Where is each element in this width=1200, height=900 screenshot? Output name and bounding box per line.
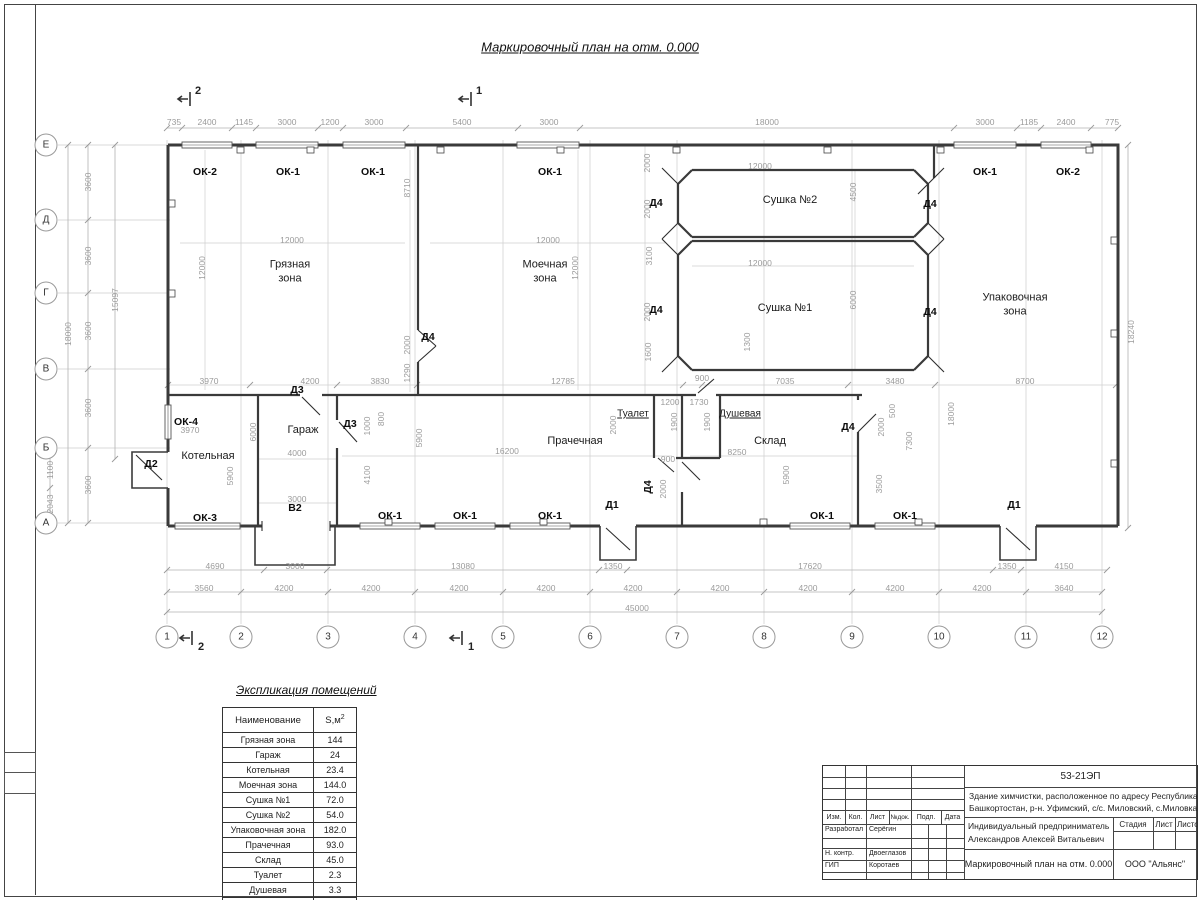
door-tag: Д2 <box>144 458 157 470</box>
vestibules <box>132 452 1036 565</box>
dimension-label: 3640 <box>1055 583 1074 593</box>
grid-axis-bubble: А <box>35 512 58 535</box>
dimension-label: 2400 <box>198 117 217 127</box>
grid-axis-bubble: 8 <box>753 626 776 649</box>
dimension-label: 5900 <box>225 467 235 486</box>
name-gip: Коротаев <box>869 862 909 872</box>
schedule-cell-name: Упаковочная зона <box>223 823 314 838</box>
dimension-label: 3600 <box>83 399 93 418</box>
section-mark-number: 1 <box>476 85 482 97</box>
grid-axis-bubble: 3 <box>317 626 340 649</box>
interior-walls <box>168 145 934 526</box>
stage-label: Стадия <box>1113 817 1153 831</box>
door-tag: Д4 <box>923 198 936 210</box>
dimension-label: 5900 <box>781 466 791 485</box>
hdr-ndok: №док. <box>889 810 911 824</box>
schedule-row: Прачечная93.0 <box>223 838 357 853</box>
dimension-label: 735 <box>167 117 181 127</box>
schedule-cell-area: 144 <box>314 733 357 748</box>
dimension-label: 3830 <box>371 376 390 386</box>
schedule-row: Туалет2.3 <box>223 868 357 883</box>
dimension-label: 3500 <box>874 475 884 494</box>
company-name: ООО "Альянс" <box>1113 849 1197 879</box>
schedule-row: Упаковочная зона182.0 <box>223 823 357 838</box>
dimension-label: 7035 <box>776 376 795 386</box>
schedule-cell-name: Склад <box>223 853 314 868</box>
grid-axis-bubble: Д <box>35 209 58 232</box>
door-tag: Д4 <box>421 331 434 343</box>
dimension-label: 2000 <box>876 418 886 437</box>
schedule-row: Сушка №254.0 <box>223 808 357 823</box>
dimension-label: 2000 <box>642 303 652 322</box>
dimension-label: 3000 <box>278 117 297 127</box>
door-leaves <box>136 168 1030 550</box>
schedule-cell-name: Сушка №2 <box>223 808 314 823</box>
schedule-cell-area: 3.3 <box>314 883 357 898</box>
dimension-label: 12785 <box>551 376 575 386</box>
grid-axis-bubble: 4 <box>404 626 427 649</box>
schedule-row: Котельная23.4 <box>223 763 357 778</box>
role-gip: ГИП <box>825 862 866 872</box>
window-tag: ОК-2 <box>193 166 217 178</box>
schedule-cell-area: 2.3 <box>314 868 357 883</box>
window-tag: ОК-1 <box>973 166 997 178</box>
dimension-label: 16200 <box>495 446 519 456</box>
dimension-label: 900 <box>661 454 675 464</box>
grid-axis-bubble: 9 <box>841 626 864 649</box>
dimension-label: 1730 <box>690 397 709 407</box>
grid-axis-bubble: 12 <box>1091 626 1114 649</box>
dimension-label: 1600 <box>643 343 653 362</box>
window-tag: ОК-2 <box>1056 166 1080 178</box>
schedule-cell-name: Сушка №1 <box>223 793 314 808</box>
door-tag: Д4 <box>923 306 936 318</box>
grid-axis-bubble: 6 <box>579 626 602 649</box>
grid-axis-bubble: 7 <box>666 626 689 649</box>
room-label: Склад <box>754 434 786 448</box>
hdr-podp: Подп. <box>911 810 941 824</box>
schedule-title: Экспликация помещений <box>236 683 377 697</box>
dimension-label: 4200 <box>301 376 320 386</box>
dimension-label: 12000 <box>536 235 560 245</box>
schedule-cell-area: 182.0 <box>314 823 357 838</box>
window-tag: ОК-1 <box>361 166 385 178</box>
dimension-label: 2400 <box>1057 117 1076 127</box>
door-tag: Д4 <box>642 480 654 493</box>
dimension-label: 18000 <box>755 117 779 127</box>
grid-axis-bubble: 2 <box>230 626 253 649</box>
name-developed: Серёгин <box>869 826 909 837</box>
dimension-label: 4200 <box>362 583 381 593</box>
schedule-cell-area: 144.0 <box>314 778 357 793</box>
dimension-label: 7300 <box>904 432 914 451</box>
dimension-label: 4200 <box>537 583 556 593</box>
schedule-row: Моечная зона144.0 <box>223 778 357 793</box>
schedule-cell-name: Прачечная <box>223 838 314 853</box>
dimension-label: 17620 <box>798 561 822 571</box>
schedule-cell-area: 54.0 <box>314 808 357 823</box>
dimension-label: 1000 <box>362 417 372 436</box>
dimension-label: 12000 <box>748 161 772 171</box>
dimension-label: 3000 <box>286 561 305 571</box>
door-tag: Д1 <box>1007 499 1020 511</box>
window-tag: ОК-1 <box>453 510 477 522</box>
dimension-label: 3600 <box>83 476 93 495</box>
client-line2: Александров Алексей Витальевич <box>968 834 1104 844</box>
dimension-label: 2000 <box>642 154 652 173</box>
dimension-label: 1100 <box>45 461 55 479</box>
window-tag: ОК-1 <box>538 510 562 522</box>
dimension-label: 800 <box>376 412 386 426</box>
dimension-label: 8250 <box>728 447 747 457</box>
dimension-label: 13080 <box>451 561 475 571</box>
dimension-label: 2000 <box>608 416 618 435</box>
schedule-cell-name: Гараж <box>223 748 314 763</box>
windows <box>165 142 1091 529</box>
door-tag: Д3 <box>343 418 356 430</box>
dimension-lines <box>50 128 1128 612</box>
window-tag: ОК-1 <box>276 166 300 178</box>
dimension-label: 4200 <box>799 583 818 593</box>
dimension-label: 1900 <box>669 413 679 432</box>
dimension-label: 18000 <box>946 402 956 426</box>
grid-axis-bubble: 5 <box>492 626 515 649</box>
schedule-row: Склад45.0 <box>223 853 357 868</box>
dimension-label: 2000 <box>642 200 652 219</box>
name-ncontrol: Двоеглазов <box>869 850 909 860</box>
grid-axis-bubble: 11 <box>1015 626 1038 649</box>
room-label: Моечная зона <box>522 258 567 287</box>
hdr-izm: Изм. <box>823 810 845 824</box>
room-label: Душевая <box>719 409 761 420</box>
dimension-label: 1290 <box>402 364 412 383</box>
dimension-label: 775 <box>1105 117 1119 127</box>
dimension-label: 45000 <box>625 603 649 613</box>
hdr-data: Дата <box>941 810 964 824</box>
dimension-label: 18240 <box>1126 320 1136 344</box>
schedule-cell-name: Котельная <box>223 763 314 778</box>
schedule-cell-area: 24 <box>314 748 357 763</box>
room-label: Гараж <box>287 423 318 437</box>
room-label: Сушка №1 <box>758 301 812 315</box>
dimension-label: 900 <box>695 373 709 383</box>
room-label: Прачечная <box>547 434 602 448</box>
schedule-row: Гараж24 <box>223 748 357 763</box>
grid-axis-bubble: Е <box>35 134 58 157</box>
dimension-label: 4100 <box>362 466 372 485</box>
room-label: Туалет <box>617 409 649 420</box>
hdr-list: Лист <box>866 810 889 824</box>
door-tag: Д1 <box>605 499 618 511</box>
dimension-label: 4690 <box>206 561 225 571</box>
schedule-cell-area: 93.0 <box>314 838 357 853</box>
dimension-label: 1300 <box>742 333 752 352</box>
section-mark-number: 2 <box>198 641 204 653</box>
client-name: Индивидуальный предприниматель Александр… <box>968 820 1118 848</box>
grid-axis-bubble: Б <box>35 437 58 460</box>
section-mark-number: 2 <box>195 85 201 97</box>
door-tag: Д4 <box>841 421 854 433</box>
dimension-label: 5400 <box>453 117 472 127</box>
window-tag: ОК-1 <box>810 510 834 522</box>
dimension-label: 1900 <box>702 413 712 432</box>
schedule-cell-name: Грязная зона <box>223 733 314 748</box>
dimension-label: 12000 <box>197 256 207 280</box>
dimension-label: 15097 <box>110 288 120 312</box>
grid-axis-bubble: 1 <box>156 626 179 649</box>
schedule-cell-name: Туалет <box>223 868 314 883</box>
dimension-label: 8700 <box>1016 376 1035 386</box>
dimension-label: 2000 <box>658 480 668 499</box>
dimension-label: 8710 <box>402 179 412 198</box>
dimension-label: 4200 <box>973 583 992 593</box>
dimension-label: 1185 <box>1020 117 1038 127</box>
schedule-table-body: Наименование S,м2 Грязная зона144Гараж24… <box>223 708 357 900</box>
section-mark-number: 1 <box>468 641 474 653</box>
dimension-label: 1200 <box>661 397 680 407</box>
sheet-label: Лист <box>1153 817 1175 831</box>
dimension-label: 3100 <box>644 247 654 266</box>
dimension-label: 1200 <box>321 117 340 127</box>
room-label: Котельная <box>181 449 234 463</box>
dimension-label: 12000 <box>748 258 772 268</box>
dimension-label: 3600 <box>83 247 93 266</box>
dimension-label: 4150 <box>1055 561 1074 571</box>
schedule-cell-area: 23.4 <box>314 763 357 778</box>
dimension-label: 3000 <box>288 494 307 504</box>
window-tag: ОК-3 <box>193 512 217 524</box>
dimension-label: 18000 <box>63 322 73 346</box>
schedule-cell-name: Душевая <box>223 883 314 898</box>
dimension-label: 3000 <box>365 117 384 127</box>
dimension-label: 3970 <box>181 425 200 435</box>
dimension-label: 12000 <box>570 256 580 280</box>
schedule-header-area: S,м2 <box>314 708 357 733</box>
hdr-kol: Кол. <box>845 810 866 824</box>
schedule-row: Грязная зона144 <box>223 733 357 748</box>
schedule-cell-area: 45.0 <box>314 853 357 868</box>
dimension-label: 12000 <box>280 235 304 245</box>
dimension-label: 2000 <box>402 336 412 355</box>
dimension-label: 3600 <box>83 322 93 341</box>
dimension-label: 4200 <box>450 583 469 593</box>
client-line1: Индивидуальный предприниматель <box>968 821 1109 831</box>
drawing-sheet: Маркировочный план на отм. 0.000 <box>0 0 1200 900</box>
window-tag: ОК-1 <box>893 510 917 522</box>
dimension-label: 3970 <box>200 376 219 386</box>
object-description: Здание химчистки, расположенное по адрес… <box>969 790 1198 816</box>
room-label: Упаковочная зона <box>982 291 1047 320</box>
dimension-label: 4200 <box>711 583 730 593</box>
grid-axis-bubble: В <box>35 358 58 381</box>
grid-axis-bubble: 10 <box>928 626 951 649</box>
grid-axis-bubble: Г <box>35 282 58 305</box>
dimension-label: 3000 <box>540 117 559 127</box>
room-schedule: Экспликация помещений Наименование S,м2 … <box>222 683 377 900</box>
dimension-label: 4200 <box>275 583 294 593</box>
schedule-row: Душевая3.3 <box>223 883 357 898</box>
window-tag: ОК-1 <box>538 166 562 178</box>
role-ncontrol: Н. контр. <box>825 850 866 860</box>
dimension-label: 4000 <box>288 448 307 458</box>
dimension-label: 4500 <box>848 183 858 202</box>
dimension-label: 3600 <box>83 173 93 192</box>
dimension-label: 4200 <box>886 583 905 593</box>
room-label: Сушка №2 <box>763 193 817 207</box>
title-block: 53-21ЭП Здание химчистки, расположенное … <box>822 765 1198 880</box>
dimension-label: 3000 <box>976 117 995 127</box>
dimension-label: 3560 <box>195 583 214 593</box>
schedule-cell-name: Моечная зона <box>223 778 314 793</box>
doc-number: 53-21ЭП <box>964 766 1197 787</box>
dimension-label: 3480 <box>886 376 905 386</box>
role-developed: Разработал <box>825 826 866 837</box>
dimension-label: 4200 <box>624 583 643 593</box>
schedule-header-name: Наименование <box>223 708 314 733</box>
dimension-label: 6000 <box>848 291 858 310</box>
window-tag: ОК-1 <box>378 510 402 522</box>
sheets-label: Листов <box>1175 817 1198 831</box>
dimension-label: 1145 <box>235 117 253 127</box>
dimension-label: 6000 <box>248 423 258 442</box>
dimension-label: 1350 <box>998 561 1017 571</box>
dimension-label: 500 <box>887 404 897 418</box>
schedule-cell-area: 72.0 <box>314 793 357 808</box>
drawing-name: Маркировочный план на отм. 0.000 <box>964 849 1113 879</box>
dimension-label: 5900 <box>414 429 424 448</box>
room-label: Грязная зона <box>270 258 310 287</box>
schedule-row: Сушка №172.0 <box>223 793 357 808</box>
schedule-header-row: Наименование S,м2 <box>223 708 357 733</box>
dimension-label: 1350 <box>604 561 623 571</box>
